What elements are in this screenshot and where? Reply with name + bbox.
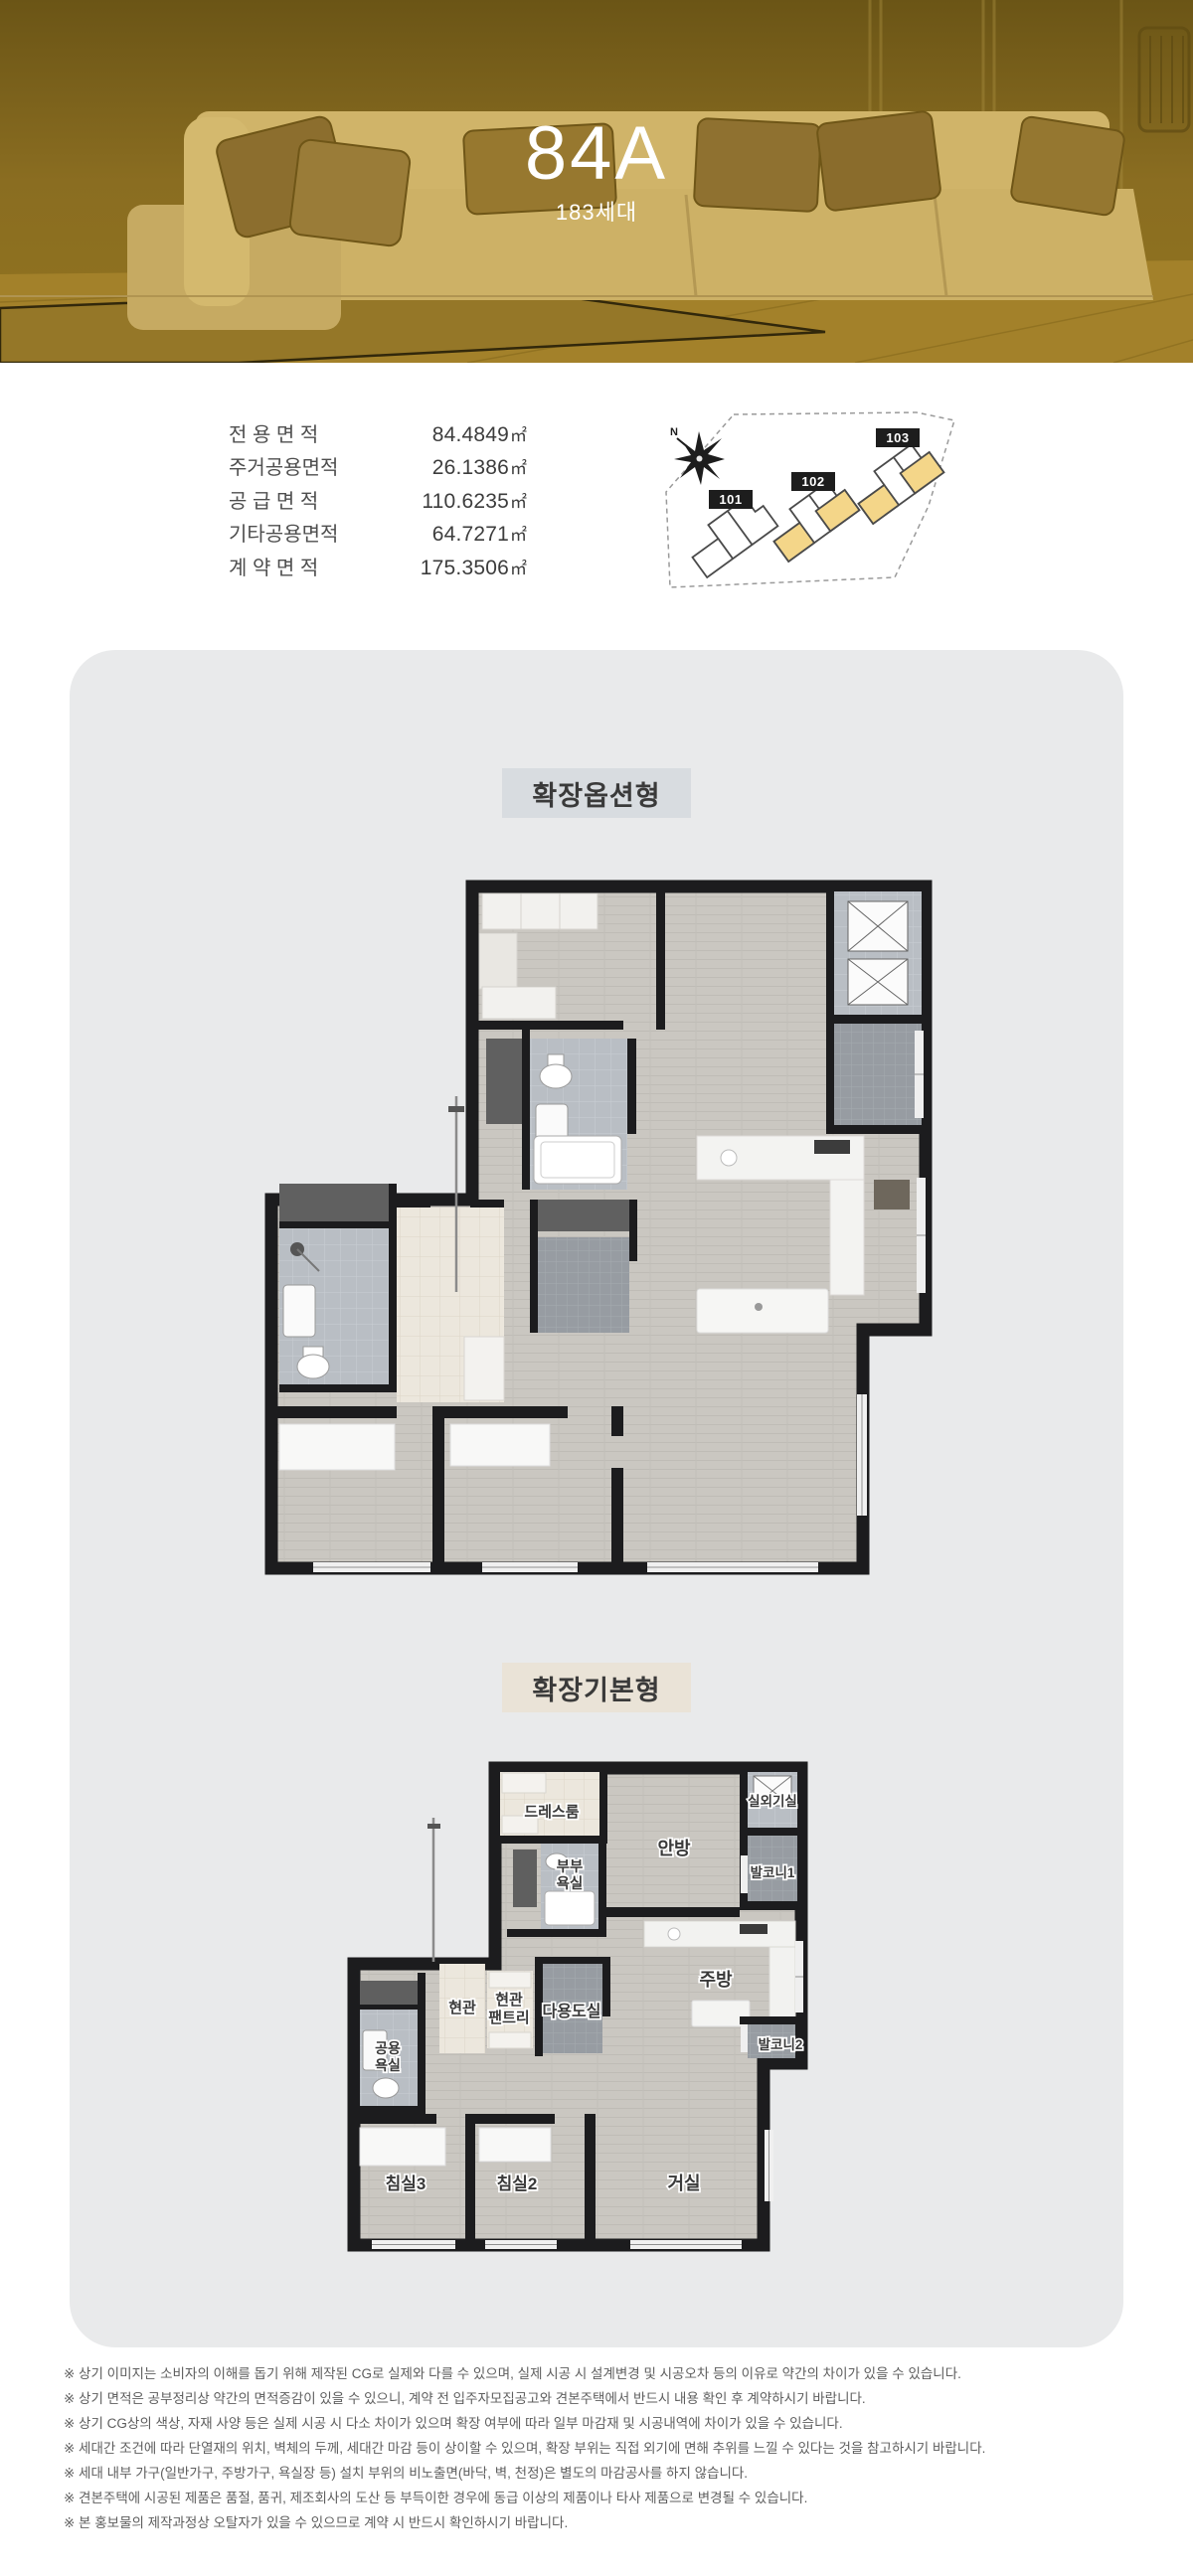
- disclaimer-item: ※ 본 홍보물의 제작과정상 오탈자가 있을 수 있으므로 계약 시 반드시 확…: [64, 2510, 1153, 2535]
- unit-type-title: 84A: [0, 115, 1193, 193]
- toilet-icon: [297, 1355, 329, 1378]
- building-101: 101: [683, 490, 778, 577]
- room-label-master-bath: 부부: [556, 1858, 583, 1875]
- floor-plans-panel: 확장옵션형: [70, 650, 1123, 2347]
- building-badge: 103: [886, 430, 909, 445]
- room-label-living: 거실: [667, 2173, 700, 2193]
- bed-icon: [360, 2128, 445, 2166]
- building-badge: 101: [719, 492, 742, 507]
- area-label: 전 용 면 적: [229, 418, 340, 447]
- table-row: 계 약 면 적 175.3506㎡: [229, 552, 527, 584]
- area-value-cell: 84.4849㎡: [432, 421, 527, 447]
- room-label-bedroom3: 침실3: [385, 2173, 426, 2193]
- room-label-utility: 다용도실: [542, 2003, 600, 2020]
- balcony-strip: [826, 1024, 926, 1134]
- toilet-icon: [540, 1064, 572, 1088]
- room-label-entry: 현관: [448, 2000, 476, 2016]
- disclaimer-item: ※ 세대 내부 가구(일반가구, 주방가구, 욕실장 등) 설치 부위의 비노출…: [64, 2461, 1153, 2486]
- kitchen-island: [697, 1289, 828, 1333]
- area-value-cell: 110.6235㎡: [422, 488, 527, 514]
- table-row: 기타공용면적 64.7271㎡: [229, 518, 527, 551]
- disclaimer-item: ※ 상기 CG상의 색상, 자재 사양 등은 실제 시공 시 다소 차이가 있으…: [64, 2411, 1153, 2436]
- room-label-balcony1: 발코니1: [750, 1864, 794, 1880]
- area-unit: ㎡: [510, 426, 527, 445]
- sink-icon: [283, 1285, 315, 1337]
- bathtub-icon: [545, 1891, 595, 1925]
- disclaimer-item: ※ 세대간 조건에 따라 단열재의 위치, 벽체의 두께, 세대간 마감 등이 …: [64, 2436, 1153, 2461]
- bathtub-icon: [534, 1136, 621, 1184]
- compass-icon: N: [670, 426, 725, 485]
- room-label-common-bath: 공용: [375, 2040, 401, 2056]
- site-plan-diagram: N 101 102: [646, 404, 964, 603]
- table-row: 공 급 면 적 110.6235㎡: [229, 485, 527, 518]
- room-label-entry-pantry: 팬트리: [488, 2010, 529, 2026]
- building-badge: 102: [801, 474, 824, 489]
- disclaimer-item: ※ 견본주택에 시공된 제품은 품절, 품귀, 제조회사의 도산 등 부득이한 …: [64, 2486, 1153, 2510]
- room-label-entry-pantry: 현관: [495, 1992, 523, 2009]
- disclaimer-item: ※ 상기 이미지는 소비자의 이해를 돕기 위해 제작된 CG로 실제와 다를 …: [64, 2361, 1153, 2386]
- area-unit: ㎡: [510, 526, 527, 545]
- area-table: 전 용 면 적 84.4849㎡ 주거공용면적 26.1386㎡ 공 급 면 적…: [229, 418, 527, 584]
- area-label: 공 급 면 적: [229, 485, 340, 514]
- bed-icon: [479, 2128, 551, 2162]
- area-value: 175.3506: [421, 557, 509, 579]
- toilet-icon: [373, 2078, 399, 2098]
- area-value: 84.4849: [432, 423, 509, 446]
- room-label-dressroom: 드레스룸: [524, 1804, 579, 1821]
- hero-banner: 84A 183세대: [0, 0, 1193, 363]
- plan-type-chip-option: 확장옵션형: [502, 768, 690, 818]
- area-info-section: 전 용 면 적 84.4849㎡ 주거공용면적 26.1386㎡ 공 급 면 적…: [0, 363, 1193, 650]
- room-label-bedroom2: 침실2: [496, 2173, 537, 2193]
- bed-icon: [279, 1424, 395, 1470]
- plan-type-chip-basic: 확장기본형: [502, 1663, 690, 1712]
- floor-plan-expanded-basic: 드레스룸 안방 실외기실 부부 욕실 발코니1 주방 현관 현관 팬트리 다용도…: [346, 1760, 848, 2257]
- area-unit: ㎡: [510, 459, 527, 478]
- room-label-master-bath: 욕실: [556, 1875, 583, 1892]
- room-label-kitchen: 주방: [699, 1970, 733, 1990]
- area-label: 주거공용면적: [229, 451, 340, 480]
- room-label-common-bath: 욕실: [375, 2057, 401, 2073]
- area-value-cell: 26.1386㎡: [432, 454, 527, 480]
- north-label: N: [670, 426, 678, 438]
- table-row: 주거공용면적 26.1386㎡: [229, 451, 527, 484]
- area-unit: ㎡: [510, 560, 527, 578]
- building-103: 103: [849, 428, 944, 524]
- area-label: 계 약 면 적: [229, 552, 340, 580]
- area-value: 26.1386: [432, 456, 509, 479]
- common-bathroom: [279, 1184, 397, 1392]
- area-value-cell: 64.7271㎡: [432, 521, 527, 547]
- disclaimer-list: ※ 상기 이미지는 소비자의 이해를 돕기 위해 제작된 CG로 실제와 다를 …: [0, 2347, 1193, 2535]
- table-row: 전 용 면 적 84.4849㎡: [229, 418, 527, 451]
- area-label: 기타공용면적: [229, 518, 340, 547]
- area-value: 110.6235: [422, 490, 509, 513]
- floor-plan-expanded-option: [261, 880, 933, 1575]
- disclaimer-item: ※ 상기 면적은 공부정리상 약간의 면적증감이 있을 수 있으니, 계약 전 …: [64, 2386, 1153, 2411]
- room-label-outdoor-unit: 실외기실: [748, 1793, 797, 1809]
- room-label-balcony2: 발코니2: [758, 2036, 802, 2052]
- household-count: 183세대: [0, 201, 1193, 225]
- room-label-master: 안방: [657, 1839, 691, 1858]
- bed-icon: [450, 1424, 550, 1466]
- area-unit: ㎡: [510, 493, 527, 512]
- hero-caption: 84A 183세대: [0, 115, 1193, 225]
- utility-room: [826, 889, 926, 1024]
- area-value: 64.7271: [432, 523, 509, 546]
- pantry-utility: [530, 1200, 637, 1333]
- area-value-cell: 175.3506㎡: [421, 555, 527, 580]
- building-102: 102: [765, 472, 860, 562]
